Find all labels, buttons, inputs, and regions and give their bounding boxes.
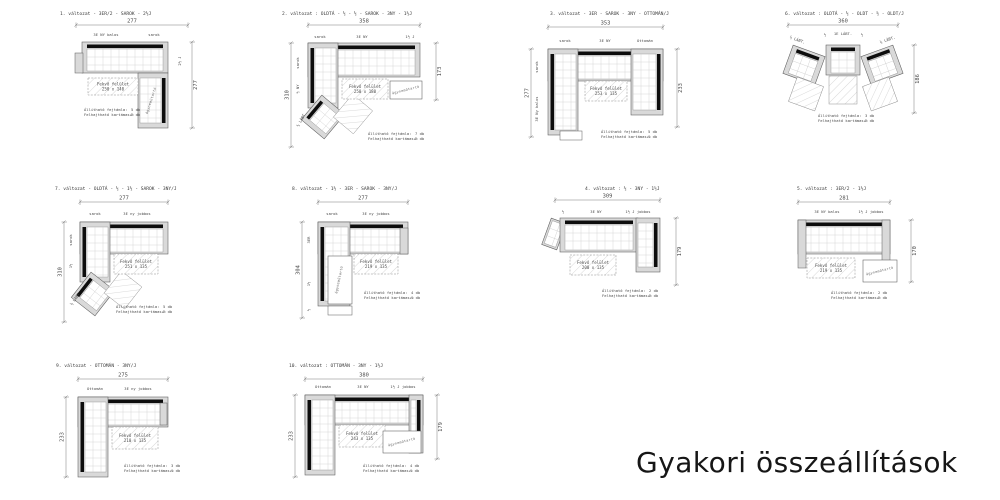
sofa-module — [548, 49, 578, 135]
module-label: 3E ny jobbos — [123, 211, 150, 216]
backrest-strip — [81, 402, 85, 472]
backrest-strip — [654, 223, 658, 267]
dimension-top: 277 — [316, 196, 409, 206]
dimension-top: 275 — [76, 373, 169, 383]
backrest-strip — [83, 227, 87, 277]
note-count: 2 db — [865, 118, 875, 123]
notes: Állítható fejtámla:2 dbFelhajtható kartá… — [602, 288, 659, 298]
dimension-left: 277 — [525, 47, 535, 138]
dimension-top: 380 — [303, 373, 424, 383]
bed-area: Fekvő felület219 x 135 — [807, 258, 855, 278]
bed-area: Fekvő felület210 x 135 — [112, 427, 158, 449]
svg-text:380: 380 — [359, 373, 369, 379]
diagram-svg-variant-8: 8. változat - 1½ - 3ER - SAROK - 3NY/J27… — [280, 180, 480, 330]
note-label: Felhajtható kartámasz: — [124, 468, 174, 473]
sofa-module — [636, 218, 660, 272]
dimension-top: 360 — [786, 19, 899, 29]
module-label: 1E LÁBT. — [834, 31, 852, 36]
bed-size: 250 x 180 — [354, 89, 377, 94]
notes: Állítható fejtámla:5 dbFelhajtható kartá… — [601, 129, 658, 139]
svg-text:173: 173 — [437, 67, 443, 77]
seat-area — [312, 400, 333, 470]
module-label: 1½ — [68, 263, 73, 268]
sofa-module — [78, 397, 108, 477]
note-label: Felhajtható kartámasz: — [818, 118, 868, 123]
dimension-right: 277 — [190, 40, 200, 129]
diagram-variant-7: 7. változat - OLDTÁ - ½ - 1½ - SAROK - 3… — [40, 180, 240, 330]
module-label: sarok — [559, 38, 571, 43]
note-label: Felhajtható kartámasz: — [363, 468, 413, 473]
module-label: sarok — [148, 32, 160, 37]
sofa-module — [80, 222, 110, 282]
notes: Állítható fejtámla:5 dbFelhajtható kartá… — [116, 304, 173, 314]
backrest-strip — [311, 48, 315, 103]
diagram-svg-variant-6: 6. változat : OLDTÁ - ½ - OLDT - ½ - OLD… — [740, 5, 940, 150]
module-label: Ottomán — [637, 38, 653, 43]
svg-text:360: 360 — [838, 19, 848, 25]
svg-text:281: 281 — [839, 196, 849, 202]
diagram-title: 7. változat - OLDTÁ - ½ - 1½ - SAROK - 3… — [55, 185, 177, 192]
note-label: Felhajtható kartámasz: — [602, 293, 652, 298]
module-label: 3E NY — [590, 209, 602, 214]
backrest-strip — [831, 48, 855, 52]
module-label: sarok — [534, 61, 539, 73]
module-label: sarok — [295, 57, 300, 69]
dimension-left: 304 — [296, 220, 306, 319]
diagram-variant-4: 4. változat : ½ - 3NY - 1½J309179Fekvő f… — [530, 180, 730, 310]
note-count: 2 db — [649, 293, 659, 298]
svg-text:179: 179 — [677, 247, 683, 257]
svg-text:277: 277 — [358, 196, 368, 202]
svg-text:310: 310 — [58, 267, 64, 277]
note-count: 2 db — [163, 309, 173, 314]
diagram-title: 6. változat : OLDTÁ - ½ - OLDT - ½ - OLD… — [785, 10, 904, 17]
module-label: sarok — [68, 234, 73, 246]
dimension-left: 310 — [285, 41, 295, 148]
note-count: 2 db — [878, 295, 888, 300]
diagram-variant-1: 1. változat - 3ER/2 - SAROK - 2½J277277F… — [40, 5, 240, 155]
note-label: Felhajtható kartámasz: — [116, 309, 166, 314]
note-label: Felhajtható kartámasz: — [368, 136, 418, 141]
sofa-module — [631, 49, 663, 115]
seat-area — [565, 225, 633, 250]
diagram-variant-2: 2. változat : OLDTÁ - ½ - ½ - SAROK - 3N… — [270, 5, 470, 165]
backrest-strip — [321, 227, 325, 301]
module-label: 3E NY balos — [814, 209, 839, 214]
dimension-top: 309 — [553, 194, 661, 204]
svg-text:275: 275 — [118, 373, 128, 379]
svg-text:233: 233 — [678, 83, 684, 93]
diagram-title: 10. változat : OTTOMÁN - 3NY - 1½J — [289, 362, 383, 369]
bed-area: Fekvő felület219 x 135 — [354, 254, 398, 274]
diagram-svg-variant-4: 4. változat : ½ - 3NY - 1½J309179Fekvő f… — [530, 180, 730, 310]
seat-area — [831, 52, 855, 73]
seat-area — [803, 227, 885, 252]
module-label: 3E Ny balos — [534, 96, 539, 121]
module-label: sarok — [89, 211, 101, 216]
note-count: 1 db — [171, 468, 181, 473]
notes: Állítható fejtámla:3 dbFelhajtható kartá… — [818, 113, 875, 123]
dimension-top: 277 — [78, 196, 169, 206]
hatched-area — [333, 94, 372, 134]
diagram-title: 8. változat - 1½ - 3ER - SAROK - 3NY/J — [292, 185, 397, 192]
module-label: sarok — [326, 211, 338, 216]
svg-text:233: 233 — [60, 432, 66, 442]
diagram-variant-10: 10. változat : OTTOMÁN - 3NY - 1½J380233… — [275, 355, 475, 495]
filler-rect — [400, 228, 408, 254]
module-label: 3E NY — [357, 384, 369, 389]
note-label: Felhajtható kartámasz: — [364, 295, 414, 300]
diagram-title: 4. változat : ½ - 3NY - 1½J — [585, 185, 660, 192]
note-count: 1 db — [410, 468, 420, 473]
notes: Állítható fejtámla:4 dbFelhajtható kartá… — [363, 463, 420, 473]
diagram-title: 2. változat : OLDTÁ - ½ - ½ - SAROK - 3N… — [282, 10, 412, 17]
dimension-right: 233 — [675, 47, 685, 128]
note-count: 2 db — [131, 112, 141, 117]
module-label: ½ — [562, 209, 565, 214]
bed-area: Fekvő felület200 x 135 — [570, 255, 616, 275]
filler-rect — [75, 53, 83, 73]
diagram-title: 1. változat - 3ER/2 - SAROK - 2½J — [60, 10, 152, 17]
svg-text:277: 277 — [127, 19, 137, 25]
diagram-svg-variant-3: 3. változat - 3ER - SAROK - 3NY - OTTOMÁ… — [505, 5, 705, 155]
diagram-title: 3. változat - 3ER - SAROK - 3NY - OTTOMÁ… — [550, 10, 669, 17]
svg-text:179: 179 — [438, 422, 444, 432]
module-label: ½ LÁBT. — [879, 35, 896, 45]
seat-area — [315, 48, 336, 103]
svg-text:277: 277 — [525, 88, 531, 98]
bed-size: 200 x 135 — [582, 265, 605, 270]
bed-area: Fekvő felület250 x 140 — [88, 78, 138, 95]
diagram-variant-6: 6. változat : OLDTÁ - ½ - OLDT - ½ - OLD… — [740, 5, 940, 150]
seat-area — [638, 223, 653, 267]
module-label: ½ NY — [295, 84, 300, 94]
module-label: 1½ — [306, 281, 311, 286]
module-label: ½ LÁBT. — [789, 35, 806, 45]
diagram-variant-8: 8. változat - 1½ - 3ER - SAROK - 3NY/J27… — [280, 180, 480, 330]
note-count: 1 db — [648, 134, 658, 139]
module-label: 3E NY — [356, 34, 368, 39]
sofa-module — [783, 45, 825, 85]
svg-text:170: 170 — [912, 246, 918, 256]
sofa-module — [560, 218, 638, 252]
page: 1. változat - 3ER/2 - SAROK - 2½J277277F… — [0, 0, 1000, 500]
module-label: 3E ny jobbos — [362, 211, 389, 216]
backrest-strip — [565, 221, 633, 225]
module-label: 3ER — [306, 236, 311, 244]
diagram-variant-5: 5. változat : 3ER/2 - 1½J281170Fekvő fel… — [765, 180, 965, 315]
module-label: 3E NY — [599, 38, 611, 43]
dimension-right: 179 — [435, 393, 445, 460]
notes: Állítható fejtámla:3 dbFelhajtható kartá… — [124, 463, 181, 473]
bed-area: Fekvő felület251 x 135 — [114, 254, 158, 274]
dimension-left: 233 — [289, 393, 299, 478]
diagram-variant-9: 9. változat - OTTOMÁN - 3NY/J275233Fekvő… — [40, 355, 240, 495]
dimension-right: 170 — [909, 218, 919, 283]
seat-area — [555, 54, 576, 130]
dimension-top: 358 — [306, 19, 421, 29]
hatched-area — [862, 77, 897, 111]
filler-rect — [160, 403, 167, 425]
seat-area — [87, 49, 163, 71]
bed-area: Fekvő felület243 x 135 — [339, 425, 385, 447]
svg-text:310: 310 — [285, 90, 291, 100]
module-label: 1½ J jobbos — [390, 384, 415, 389]
diagram-svg-variant-7: 7. változat - OLDTÁ - ½ - 1½ - SAROK - 3… — [40, 180, 240, 330]
svg-text:186: 186 — [915, 74, 921, 84]
backrest-strip — [803, 223, 885, 227]
module-label: ½ — [306, 308, 311, 311]
dimension-top: 281 — [796, 196, 891, 206]
diagram-svg-variant-2: 2. változat : OLDTÁ - ½ - ½ - SAROK - 3N… — [270, 5, 470, 165]
dimension-right: 173 — [434, 41, 444, 101]
notes: Állítható fejtámla:2 dbFelhajtható kartá… — [831, 290, 888, 300]
backrest-strip — [551, 54, 555, 130]
module-label: 3E ny jobbos — [124, 386, 151, 391]
module-label: sarok — [314, 34, 326, 39]
bed-size: 250 x 140 — [102, 87, 125, 92]
module-label: 3E NY balos — [93, 32, 118, 37]
module-label: 1½ J — [405, 34, 414, 39]
hatched-area — [788, 77, 823, 111]
sofa-module — [305, 395, 335, 475]
diagram-svg-variant-10: 10. változat : OTTOMÁN - 3NY - 1½J380233… — [275, 355, 475, 495]
module-label: 1½ J jobbos — [625, 209, 650, 214]
module-label: ½ — [824, 32, 827, 37]
module-label: 1½ J jobbos — [858, 209, 883, 214]
backrest-strip — [162, 78, 166, 123]
dimension-right: 179 — [674, 216, 684, 286]
diagram-title: 5. változat : 3ER/2 - 1½J — [797, 185, 866, 192]
bed-size: 210 x 135 — [124, 438, 147, 443]
svg-text:304: 304 — [296, 265, 302, 275]
diagram-title: 9. változat - OTTOMÁN - 3NY/J — [56, 362, 136, 369]
dimension-left: 233 — [60, 395, 70, 478]
svg-text:277: 277 — [193, 80, 199, 90]
dimension-right: 186 — [912, 43, 922, 114]
filler-rect — [328, 306, 352, 315]
seat-area — [85, 402, 106, 472]
note-label: Felhajtható kartámasz: — [84, 112, 134, 117]
diagram-svg-variant-1: 1. változat - 3ER/2 - SAROK - 2½J277277F… — [40, 5, 240, 155]
module-label: Ottomán — [315, 384, 331, 389]
dimension-left: 310 — [58, 220, 68, 323]
svg-text:233: 233 — [289, 431, 295, 441]
sofa-module — [798, 220, 890, 254]
bed-size: 219 x 135 — [365, 264, 388, 269]
notes: Állítható fejtámla:4 dbFelhajtható kartá… — [364, 290, 421, 300]
module-label: 2½ J — [177, 56, 182, 65]
seat-area — [87, 227, 108, 277]
page-caption: Gyakori összeállítások — [636, 446, 958, 479]
bed-size: 251 x 135 — [125, 264, 148, 269]
sofa-module — [826, 45, 860, 75]
diagram-svg-variant-9: 9. változat - OTTOMÁN - 3NY/J275233Fekvő… — [40, 355, 240, 495]
notes: Állítható fejtámla:7 dbFelhajtható kartá… — [368, 131, 425, 141]
filler-rect — [560, 131, 582, 140]
bed-size: 219 x 135 — [820, 268, 843, 273]
svg-text:277: 277 — [119, 196, 129, 202]
note-count: 1 db — [411, 295, 421, 300]
notes: Állítható fejtámla:5 dbFelhajtható kartá… — [84, 107, 141, 117]
module-label: Ottomán — [87, 386, 103, 391]
filler-rect — [798, 220, 806, 268]
note-count: 2 db — [415, 136, 425, 141]
module-label: ½ — [861, 32, 864, 37]
sofa-module — [861, 45, 903, 85]
svg-text:309: 309 — [603, 194, 613, 200]
dimension-top: 277 — [74, 19, 189, 29]
bed-size: 243 x 135 — [351, 436, 374, 441]
dimension-top: 353 — [546, 21, 664, 31]
backrest-strip — [308, 400, 312, 470]
backrest-strip — [87, 45, 163, 49]
sofa-module — [82, 42, 168, 73]
svg-text:358: 358 — [359, 19, 369, 25]
diagram-variant-3: 3. változat - 3ER - SAROK - 3NY - OTTOMÁ… — [505, 5, 705, 155]
backrest-strip — [657, 54, 661, 110]
seat-area — [633, 54, 656, 110]
bed-size: 253 x 135 — [595, 91, 618, 96]
svg-text:353: 353 — [601, 21, 611, 27]
note-label: Felhajtható kartámasz: — [831, 295, 881, 300]
bed-area: Fekvő felület253 x 135 — [585, 81, 627, 101]
bed-area: Fekvő felület250 x 180 — [342, 79, 388, 99]
note-label: Felhajtható kartámasz: — [601, 134, 651, 139]
hatched-area — [829, 76, 857, 104]
diagram-svg-variant-5: 5. változat : 3ER/2 - 1½J281170Fekvő fel… — [765, 180, 965, 315]
